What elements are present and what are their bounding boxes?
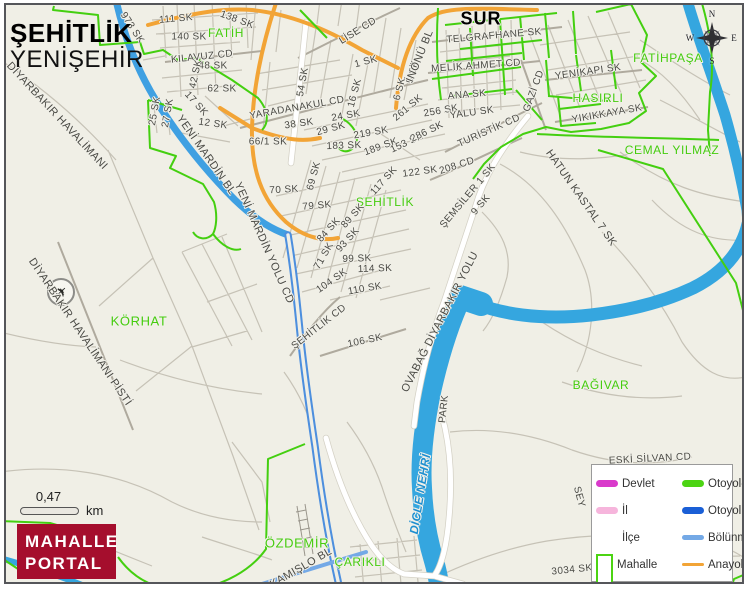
legend-swatch-icon: [682, 480, 704, 487]
legend-swatch-icon: [596, 535, 618, 540]
legend-item: Otoyol: [682, 497, 744, 524]
map-label: CEMAL YILMAZ: [625, 143, 720, 157]
map-label: FATİHPAŞA: [633, 51, 703, 65]
legend-swatch-icon: [682, 563, 704, 566]
map-title-block: ŞEHİTLİK YENİŞEHİR: [10, 20, 144, 73]
legend-label: Otoyol-YİD: [708, 478, 744, 490]
map-label: SUR: [460, 9, 501, 30]
compass-east: E: [729, 33, 739, 43]
legend-items: DevletİlİlçeMahalleOtoyol-YİDOtoyolBölün…: [592, 465, 732, 580]
map-frame: ✈ N E S W 973 SK111 SK138 SK140 SKFATİHK…: [4, 3, 744, 584]
legend-swatch-icon: [596, 480, 618, 487]
map-label: ÖZDEMİR: [265, 536, 329, 551]
legend-label: Bölünmüş Y: [708, 532, 744, 544]
map-label: 66/1 SK: [249, 137, 287, 148]
logo-line2: PORTAL: [25, 553, 116, 575]
map-label: BAĞIVAR: [573, 378, 630, 392]
legend-item: Anayol: [682, 551, 744, 578]
map-label: HASIRLI: [573, 91, 624, 105]
scale-bar-rect: [20, 507, 79, 515]
scale-unit: km: [86, 503, 103, 518]
legend-item: İl: [596, 497, 682, 524]
legend-swatch-icon: [682, 535, 704, 540]
legend-item: İlçe: [596, 524, 682, 551]
map-label: KÖRHAT: [111, 314, 168, 329]
legend-item: Bölünmüş Y: [682, 524, 744, 551]
legend-swatch-icon: [682, 507, 704, 514]
map-label: 70 SK: [269, 184, 299, 197]
legend-item: Devlet: [596, 470, 682, 497]
compass-south: S: [707, 56, 717, 66]
legend-label: Mahalle: [617, 559, 657, 571]
logo-line1: MAHALLE: [25, 531, 116, 553]
map-label: 62 SK: [207, 84, 236, 95]
legend-swatch-icon: [596, 507, 618, 514]
legend-label: İl: [622, 505, 628, 517]
compass-north: N: [707, 9, 717, 19]
map-label: FATİH: [208, 26, 244, 40]
scale-distance: 0,47: [20, 489, 77, 504]
map-viewport[interactable]: ✈ N E S W 973 SK111 SK138 SK140 SKFATİHK…: [0, 0, 748, 598]
legend-swatch-icon: [596, 554, 613, 584]
legend: DevletİlİlçeMahalleOtoyol-YİDOtoyolBölün…: [591, 464, 733, 582]
map-label: 183 SK: [326, 140, 362, 152]
map-label: ÇARIKLI: [335, 555, 386, 569]
legend-label: Anayol: [708, 559, 743, 571]
legend-label: Devlet: [622, 478, 655, 490]
legend-label: İlçe: [622, 532, 640, 544]
compass-west: W: [685, 33, 695, 43]
map-label: 114 SK: [358, 263, 393, 275]
legend-label: Otoyol: [708, 505, 741, 517]
page-subtitle: YENİŞEHİR: [10, 47, 144, 73]
legend-item: Otoyol-YİD: [682, 470, 744, 497]
map-inner: ✈ N E S W 973 SK111 SK138 SK140 SKFATİHK…: [4, 3, 744, 584]
mahalle-portal-logo: MAHALLE PORTAL: [17, 524, 116, 579]
legend-item: Mahalle: [596, 551, 682, 578]
map-label: 140 SK: [171, 32, 206, 43]
page-title: ŞEHİTLİK: [10, 20, 144, 47]
